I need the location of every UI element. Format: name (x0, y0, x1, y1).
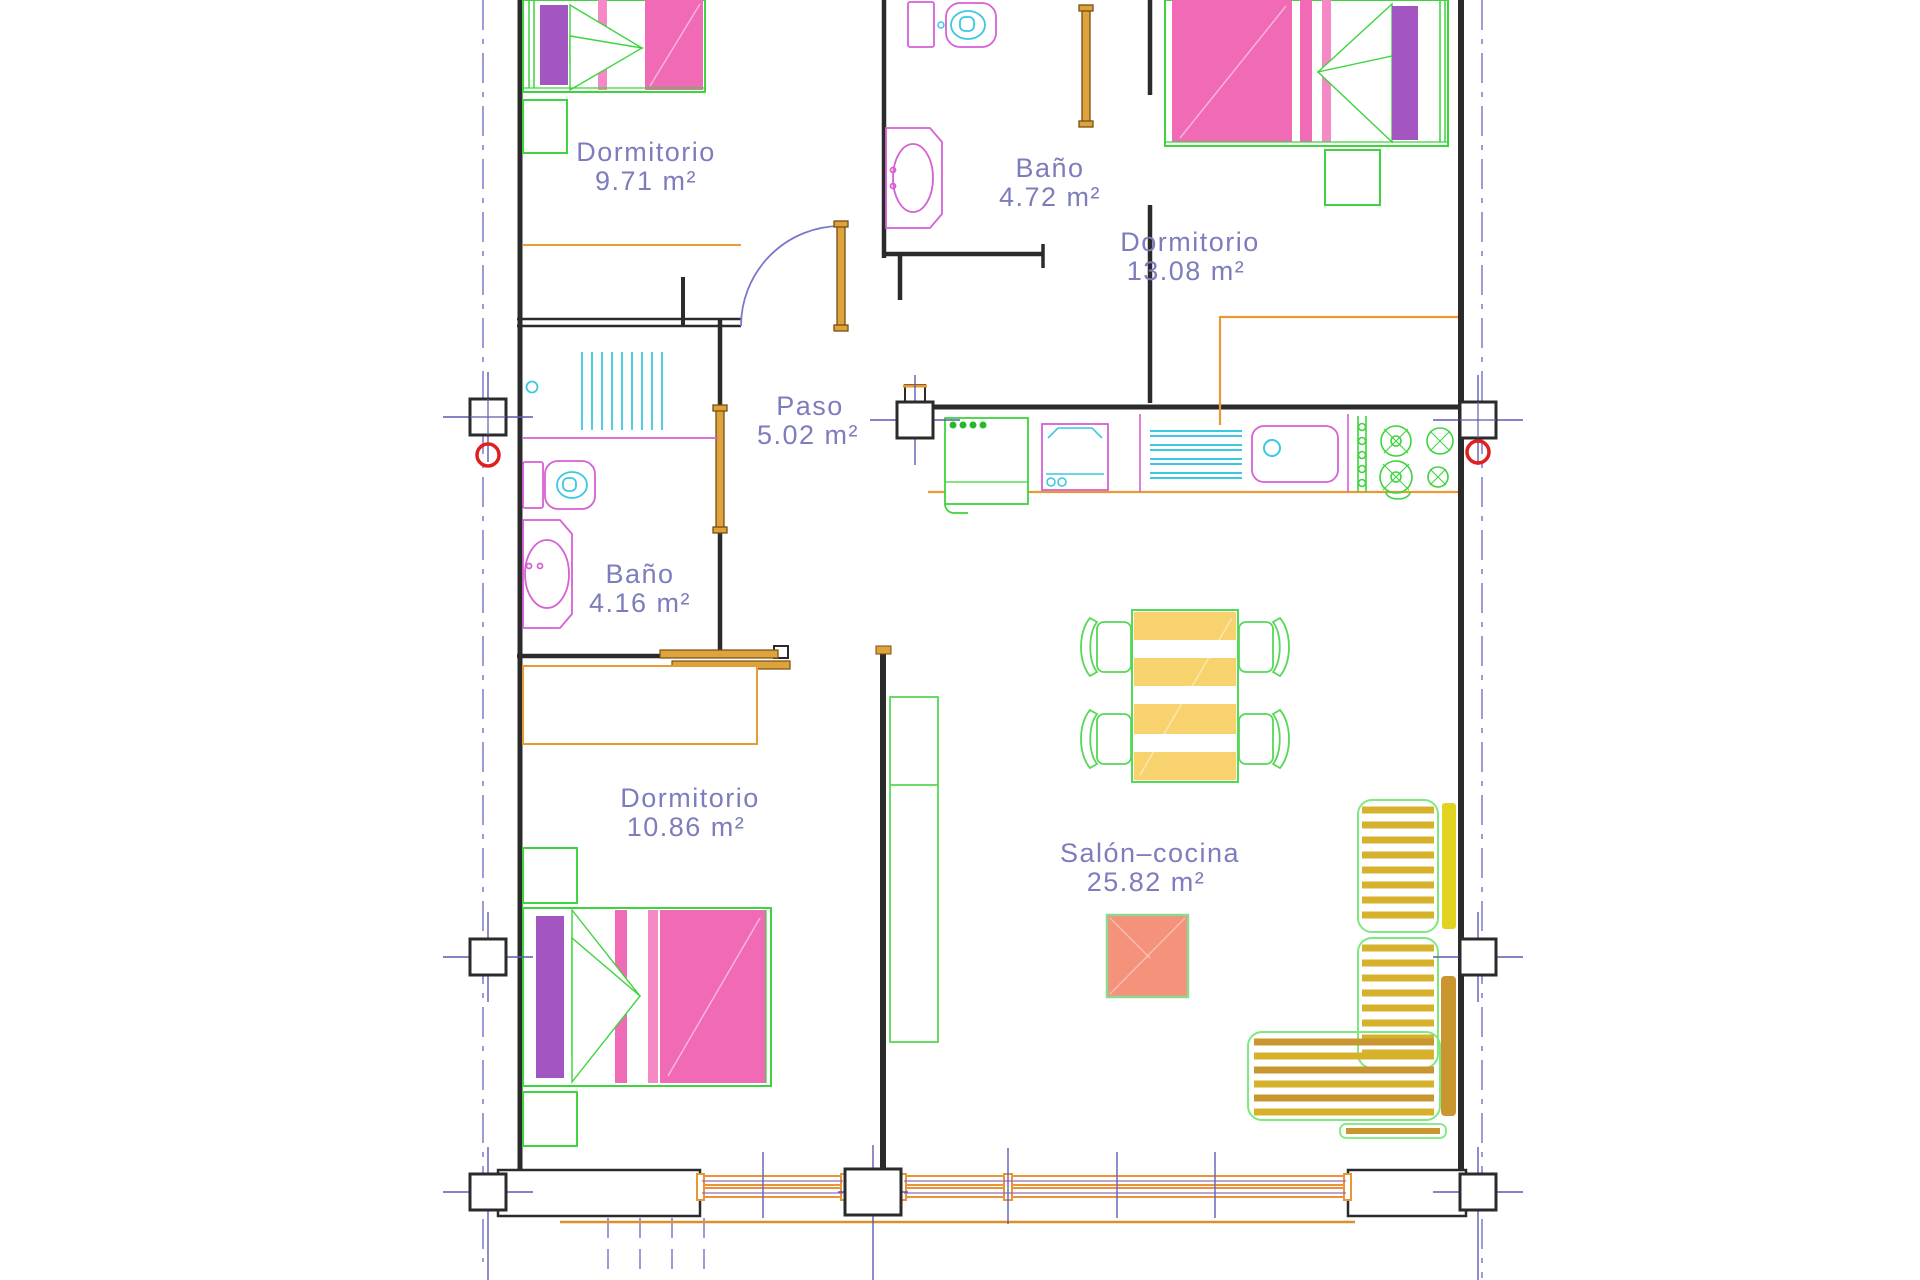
double-bed-icon (523, 908, 771, 1086)
chair-icon (1081, 618, 1131, 676)
structural-column-icon (845, 1169, 901, 1215)
room-name: Baño (605, 559, 674, 589)
floor-plan: Dormitorio 9.71 m² Baño 4.72 m² (0, 0, 1920, 1280)
room-label-paso: Paso 5.02 m² (757, 391, 859, 450)
wall-cap (876, 646, 891, 654)
room-label-bano-1: Baño 4.72 m² (999, 153, 1101, 212)
tv-cabinet-icon (890, 697, 938, 1042)
nightstand-icon (523, 848, 577, 903)
bano-2: Baño 4.16 m² (523, 352, 718, 628)
dormitorio-1: Dormitorio 9.71 m² (523, 0, 741, 245)
washbasin-icon (886, 128, 942, 228)
floor-plan-canvas: Dormitorio 9.71 m² Baño 4.72 m² (0, 0, 1920, 1280)
sofa-armrest-cushion (1441, 976, 1456, 1116)
sofa-seat-cushion (1340, 1124, 1446, 1138)
structural-column-icon (897, 402, 933, 438)
toilet-icon (523, 461, 595, 509)
shower-grille-icon (527, 352, 663, 430)
sink-icon (1252, 426, 1338, 482)
room-area: 13.08 m² (1127, 256, 1246, 286)
chair-icon (1081, 710, 1131, 768)
room-label-dormitorio-3: Dormitorio 10.86 m² (620, 783, 760, 842)
room-area: 25.82 m² (1087, 867, 1206, 897)
hob-4-burners-icon (1358, 416, 1453, 499)
window-icon (899, 1174, 1351, 1200)
dormitorio-2: Dormitorio 13.08 m² (1120, 0, 1458, 425)
wardrobe-icon (523, 666, 757, 744)
oven-icon (1042, 424, 1108, 490)
room-label-bano-2: Baño 4.16 m² (589, 559, 691, 618)
room-name: Dormitorio (620, 783, 760, 813)
paso: Paso 5.02 m² (757, 391, 859, 450)
structural-columns (443, 372, 1523, 1280)
bano-1: Baño 4.72 m² (886, 2, 1101, 228)
room-area: 4.72 m² (999, 182, 1101, 212)
room-area: 5.02 m² (757, 420, 859, 450)
room-label-dormitorio-1: Dormitorio 9.71 m² (576, 137, 716, 196)
sofa-back-cushion (1442, 803, 1456, 929)
structural-column-icon (470, 939, 506, 975)
l-shaped-sofa-icon (1248, 800, 1456, 1138)
bottom-facade (498, 1148, 1466, 1224)
fridge-icon (945, 418, 1028, 513)
structural-column-icon (1460, 1174, 1496, 1210)
nightstand-icon (1325, 150, 1380, 205)
chair-icon (1239, 618, 1289, 676)
double-bed-icon (1165, 0, 1448, 146)
kitchen-counter (928, 414, 1458, 513)
room-label-dormitorio-2: Dormitorio 13.08 m² (1120, 227, 1260, 286)
room-name: Baño (1015, 153, 1084, 183)
pillow-icon (1392, 6, 1418, 140)
window-icon (697, 1174, 848, 1200)
room-area: 4.16 m² (589, 588, 691, 618)
coffee-table-icon (1107, 915, 1188, 997)
nightstand-icon (523, 1092, 577, 1146)
door-swing-arc-icon (741, 226, 841, 326)
room-area: 9.71 m² (595, 166, 697, 196)
room-name: Dormitorio (1120, 227, 1260, 257)
drainboard-icon (1150, 431, 1242, 478)
double-bed-icon (523, 0, 705, 92)
pillow-icon (540, 5, 568, 85)
door-leaf-icon (1082, 10, 1090, 122)
room-name: Dormitorio (576, 137, 716, 167)
shower-drain-icon (527, 382, 538, 393)
doors (660, 5, 1093, 669)
toilet-icon (908, 2, 996, 47)
washbasin-icon (523, 520, 572, 628)
dormitorio-3: Dormitorio 10.86 m² (523, 666, 771, 1146)
chair-icon (1239, 710, 1289, 768)
salon-cocina: Salón–cocina 25.82 m² (876, 414, 1458, 1138)
room-name: Paso (776, 391, 844, 421)
nightstand-icon (523, 100, 567, 153)
room-name: Salón–cocina (1060, 838, 1240, 868)
structural-column-icon (470, 1174, 506, 1210)
room-label-salon-cocina: Salón–cocina 25.82 m² (1060, 838, 1240, 897)
room-area: 10.86 m² (627, 812, 746, 842)
door-leaf-icon (837, 226, 845, 326)
pillow-icon (536, 916, 564, 1078)
dining-table-icon (1132, 610, 1238, 782)
door-leaf-icon (716, 410, 724, 528)
structural-column-icon (1460, 939, 1496, 975)
